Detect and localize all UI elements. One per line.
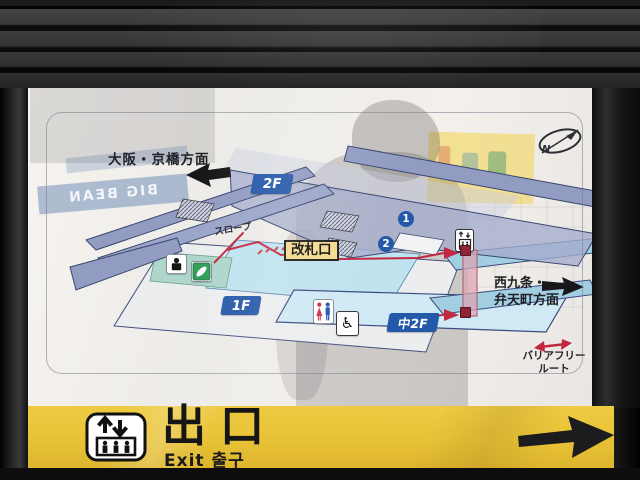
glass-glare	[28, 88, 592, 408]
elevator-pictogram-icon	[84, 412, 148, 462]
station-sign-photo: BIG BEAN	[0, 0, 640, 480]
exit-title: 出口	[162, 404, 278, 450]
frame-left	[0, 88, 28, 480]
exit-direction-arrow-icon	[516, 414, 616, 464]
frame-right	[592, 88, 640, 408]
frame-bottom	[0, 468, 640, 480]
